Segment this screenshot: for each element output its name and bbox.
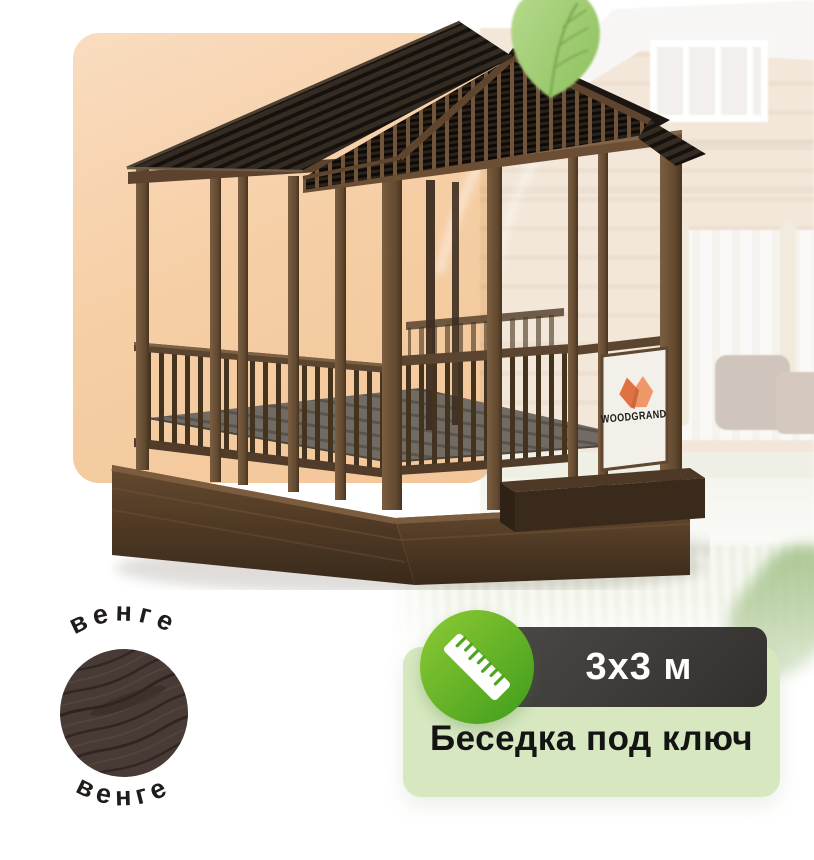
woodgrand-sign: WOODGRAND [600,348,667,470]
promo-title: Беседка под ключ [403,719,780,759]
ruler-icon-circle [420,610,534,724]
size-label: 3x3 м [585,646,692,689]
product-image: WOODGRAND [0,0,814,860]
wenge-label-top: венге [64,597,184,640]
ruler-icon [420,610,534,724]
porch-furniture [776,372,814,434]
side-railing [134,342,388,478]
leaf-icon [495,0,625,103]
wood-swatch: венге венге [27,583,227,818]
